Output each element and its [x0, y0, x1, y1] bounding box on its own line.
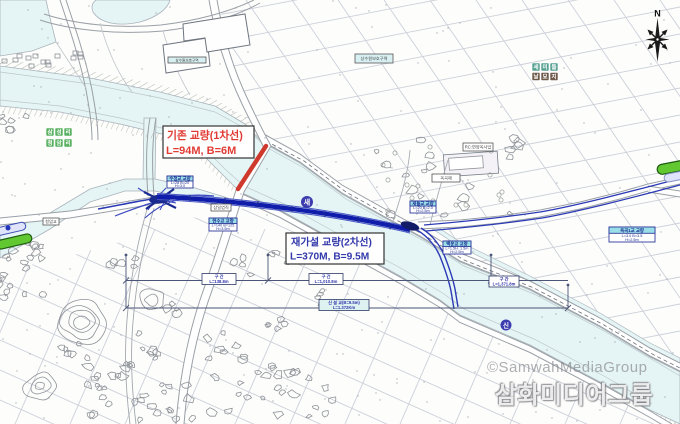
svg-text:들: 들: [551, 63, 556, 71]
svg-text:세: 세: [533, 63, 538, 71]
svg-text:L=94M, B=6M: L=94M, B=6M: [166, 145, 236, 157]
svg-text:L=1,371.8m: L=1,371.8m: [493, 281, 516, 286]
svg-text:청암교: 청암교: [45, 218, 57, 224]
svg-text:리: 리: [65, 128, 70, 136]
svg-text:삼일염직: 삼일염직: [213, 204, 229, 211]
svg-text:지: 지: [551, 73, 556, 81]
svg-text:옥곡제: 옥곡제: [440, 175, 452, 182]
svg-text:N: N: [654, 9, 661, 19]
svg-text:상수원보호구역: 상수원보호구역: [361, 55, 388, 62]
svg-text:H=3.5m: H=3.5m: [216, 227, 229, 231]
svg-text:H=2.5m: H=2.5m: [416, 209, 429, 213]
svg-text:미: 미: [542, 63, 547, 71]
svg-text:RC:면양옥사업: RC:면양옥사업: [465, 144, 492, 151]
svg-text:기존 교량(1차선): 기존 교량(1차선): [167, 128, 243, 142]
svg-text:날: 날: [533, 73, 538, 81]
svg-text:신: 신: [503, 321, 509, 330]
svg-text:묘: 묘: [542, 74, 547, 81]
svg-text:L=370M, B=9.5M: L=370M, B=9.5M: [290, 252, 369, 263]
svg-text:옥곡1교 교량: 옥곡1교 교량: [620, 227, 644, 234]
svg-text:H=2.5m: H=2.5m: [450, 250, 463, 254]
svg-text:L=1,010.8m: L=1,010.8m: [315, 279, 338, 284]
svg-text:H=3.0: H=3.0: [175, 184, 185, 188]
svg-text:리: 리: [65, 139, 70, 147]
svg-text:재가설 교량(2차선): 재가설 교량(2차선): [291, 236, 372, 249]
svg-text:상수원보호구역: 상수원보호구역: [175, 58, 198, 63]
svg-text:청: 청: [47, 139, 52, 147]
svg-text:새: 새: [304, 198, 310, 207]
svg-text:암: 암: [56, 139, 61, 147]
svg-text:L=138.8m: L=138.8m: [209, 279, 228, 284]
svg-text:삼: 삼: [47, 128, 52, 136]
svg-text:성: 성: [56, 128, 61, 136]
svg-text:H=2.5m: H=2.5m: [625, 238, 638, 242]
svg-text:L=1.372Km: L=1.372Km: [333, 305, 356, 310]
